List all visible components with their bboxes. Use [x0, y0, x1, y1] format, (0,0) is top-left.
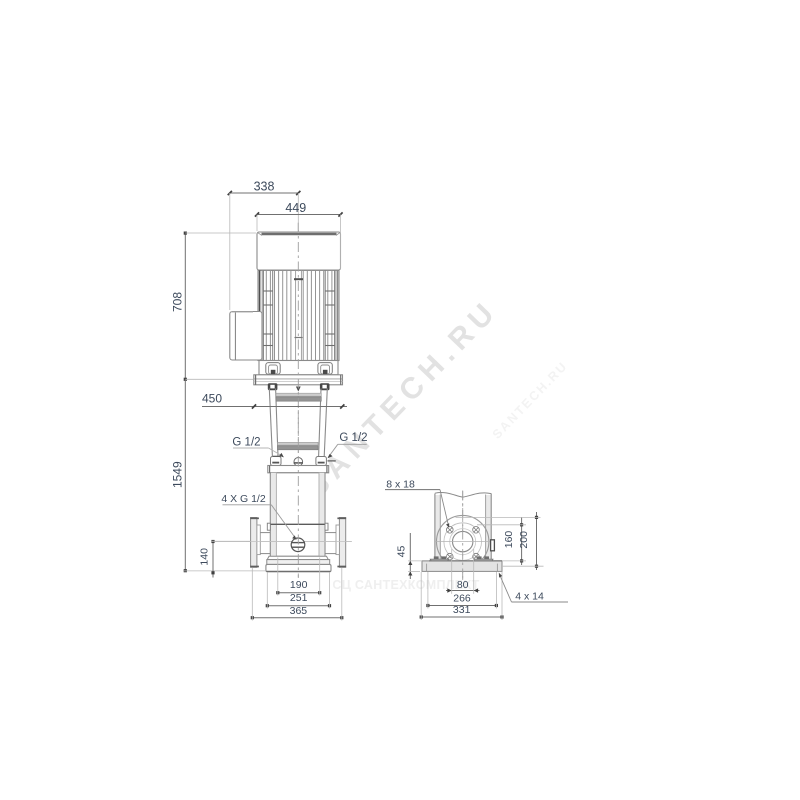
svg-text:708: 708: [170, 292, 184, 312]
svg-text:160: 160: [503, 531, 515, 549]
svg-text:266: 266: [453, 592, 471, 604]
svg-text:G 1/2: G 1/2: [339, 432, 367, 444]
svg-text:1549: 1549: [170, 461, 184, 488]
svg-text:80: 80: [457, 579, 469, 591]
svg-text:450: 450: [202, 392, 222, 406]
svg-text:200: 200: [518, 531, 530, 549]
svg-text:331: 331: [453, 604, 471, 616]
svg-text:45: 45: [396, 546, 408, 558]
svg-text:8 x 18: 8 x 18: [386, 478, 415, 490]
svg-text:4 X G 1/2: 4 X G 1/2: [221, 493, 266, 505]
svg-text:G 1/2: G 1/2: [232, 436, 260, 448]
svg-text:140: 140: [199, 548, 211, 566]
svg-text:365: 365: [290, 605, 308, 617]
svg-text:338: 338: [254, 180, 275, 194]
svg-text:251: 251: [290, 592, 308, 604]
svg-text:449: 449: [285, 201, 306, 215]
svg-text:4 x 14: 4 x 14: [515, 591, 544, 603]
svg-text:190: 190: [290, 579, 308, 591]
